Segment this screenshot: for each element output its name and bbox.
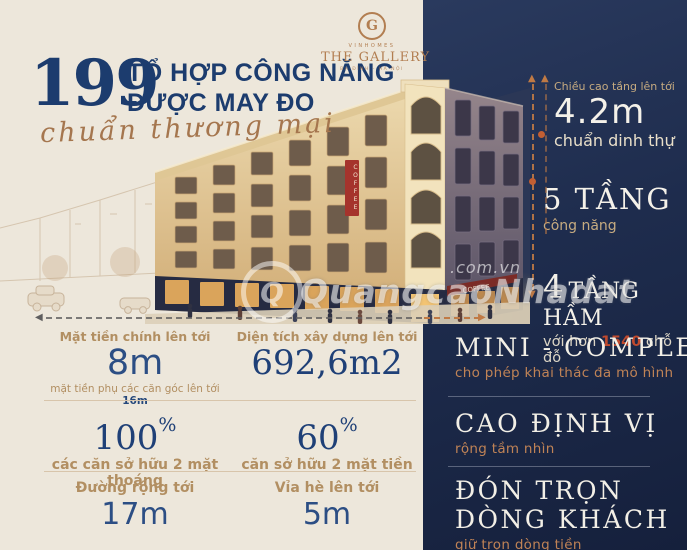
- feature-sub: giữ trọn dòng tiền: [455, 537, 680, 550]
- sketch-car: [28, 286, 150, 313]
- stat-label: Đường rộng tới: [36, 480, 234, 496]
- brand-project-name: THE GALLERY: [321, 50, 423, 65]
- brand-name: VINHOMES: [321, 43, 423, 49]
- stat-value-unit: %: [340, 414, 358, 436]
- stat-label: Vỉa hè lên tới: [234, 480, 420, 496]
- feature-title: MINI - COMPLEX: [455, 333, 680, 362]
- feature-sub: cho phép khai thác đa mô hình: [455, 365, 680, 381]
- floors-block: 5 TẦNG công năng: [543, 182, 672, 234]
- arrow-right-icon: ▶: [478, 313, 486, 323]
- divider: [44, 471, 416, 472]
- measure-dot: [538, 131, 545, 138]
- floors-sub: công năng: [543, 218, 672, 234]
- feature-cao-dinh-vi: CAO ĐỊNH VỊ rộng tầm nhìn: [455, 409, 680, 457]
- watermark-text: QuangcaoNhadat: [300, 272, 634, 311]
- stat-2-frontages: 60% căn sở hữu 2 mặt tiền: [234, 406, 420, 473]
- stat-value: 5m: [234, 496, 420, 534]
- arrow-left-icon: ◀: [35, 313, 43, 323]
- floor-height-value: 4.2m: [554, 93, 675, 131]
- stat-sidewalk-width: Vỉa hè lên tới 5m: [234, 480, 420, 534]
- arrow-up-icon: ▲: [541, 74, 549, 84]
- measure-dot: [529, 178, 536, 185]
- floors-value: 5 TẦNG: [543, 182, 672, 216]
- stat-build-area: Diện tích xây dựng lên tới 692,6m2: [234, 329, 420, 382]
- feature-mini-complex: MINI - COMPLEX cho phép khai thác đa mô …: [455, 333, 680, 381]
- poster: COFFEE COFFEE 199 TỔ HỢP CÔNG NĂNG ĐƯỢC …: [0, 0, 687, 550]
- stat-value-number: 100: [94, 418, 159, 458]
- stat-value: 100%: [36, 406, 234, 457]
- stat-sub-prefix: mặt tiền phụ các căn góc lên tới: [50, 383, 219, 395]
- frontage-measure-line: [46, 317, 422, 319]
- brand-location: BA ĐÌNH - HÀ NỘI: [321, 67, 423, 72]
- stat-road-width: Đường rộng tới 17m: [36, 480, 234, 534]
- floor-height-block: Chiều cao tầng lên tới 4.2m chuẩn dinh t…: [554, 80, 675, 150]
- feature-don-tron-dong-khach: ĐÓN TRỌN DÒNG KHÁCH giữ trọn dòng tiền: [455, 476, 680, 550]
- divider: [448, 396, 650, 397]
- arrow-up-icon: ▲: [528, 74, 536, 84]
- stat-value-unit: %: [158, 414, 176, 436]
- watermark-logo-icon: Q: [241, 261, 303, 323]
- divider: [44, 400, 416, 401]
- stat-label: Mặt tiền chính lên tới: [36, 329, 234, 344]
- divider: [448, 466, 650, 467]
- stat-value: 692,6m2: [234, 344, 420, 382]
- stat-sub: mặt tiền phụ các căn góc lên tới 16m: [36, 383, 234, 407]
- brand-logo: G VINHOMES THE GALLERY BA ĐÌNH - HÀ NỘI: [321, 12, 423, 72]
- height-measure-line: [532, 84, 534, 290]
- feature-title: CAO ĐỊNH VỊ: [455, 409, 680, 438]
- stat-value: 60%: [234, 406, 420, 457]
- height-measure-line: [545, 84, 547, 234]
- stat-value: 17m: [36, 496, 234, 534]
- stat-2-open-sides: 100% các căn sở hữu 2 mặt thoáng: [36, 406, 234, 489]
- stat-main-frontage: Mặt tiền chính lên tới 8m mặt tiền phụ c…: [36, 329, 234, 407]
- floor-height-sub: chuẩn dinh thự: [554, 131, 675, 150]
- coffee-vertical-sign: COFFEE: [345, 160, 359, 216]
- stat-value: 8m: [36, 344, 234, 382]
- frontage-measure-line-navy: [424, 317, 480, 319]
- feature-title-line2: DÒNG KHÁCH: [455, 505, 680, 534]
- feature-title-line1: ĐÓN TRỌN: [455, 476, 680, 505]
- feature-sub: rộng tầm nhìn: [455, 441, 680, 457]
- stat-label: Diện tích xây dựng lên tới: [234, 329, 420, 344]
- stat-value-number: 60: [296, 418, 339, 458]
- brand-monogram-icon: G: [358, 12, 386, 40]
